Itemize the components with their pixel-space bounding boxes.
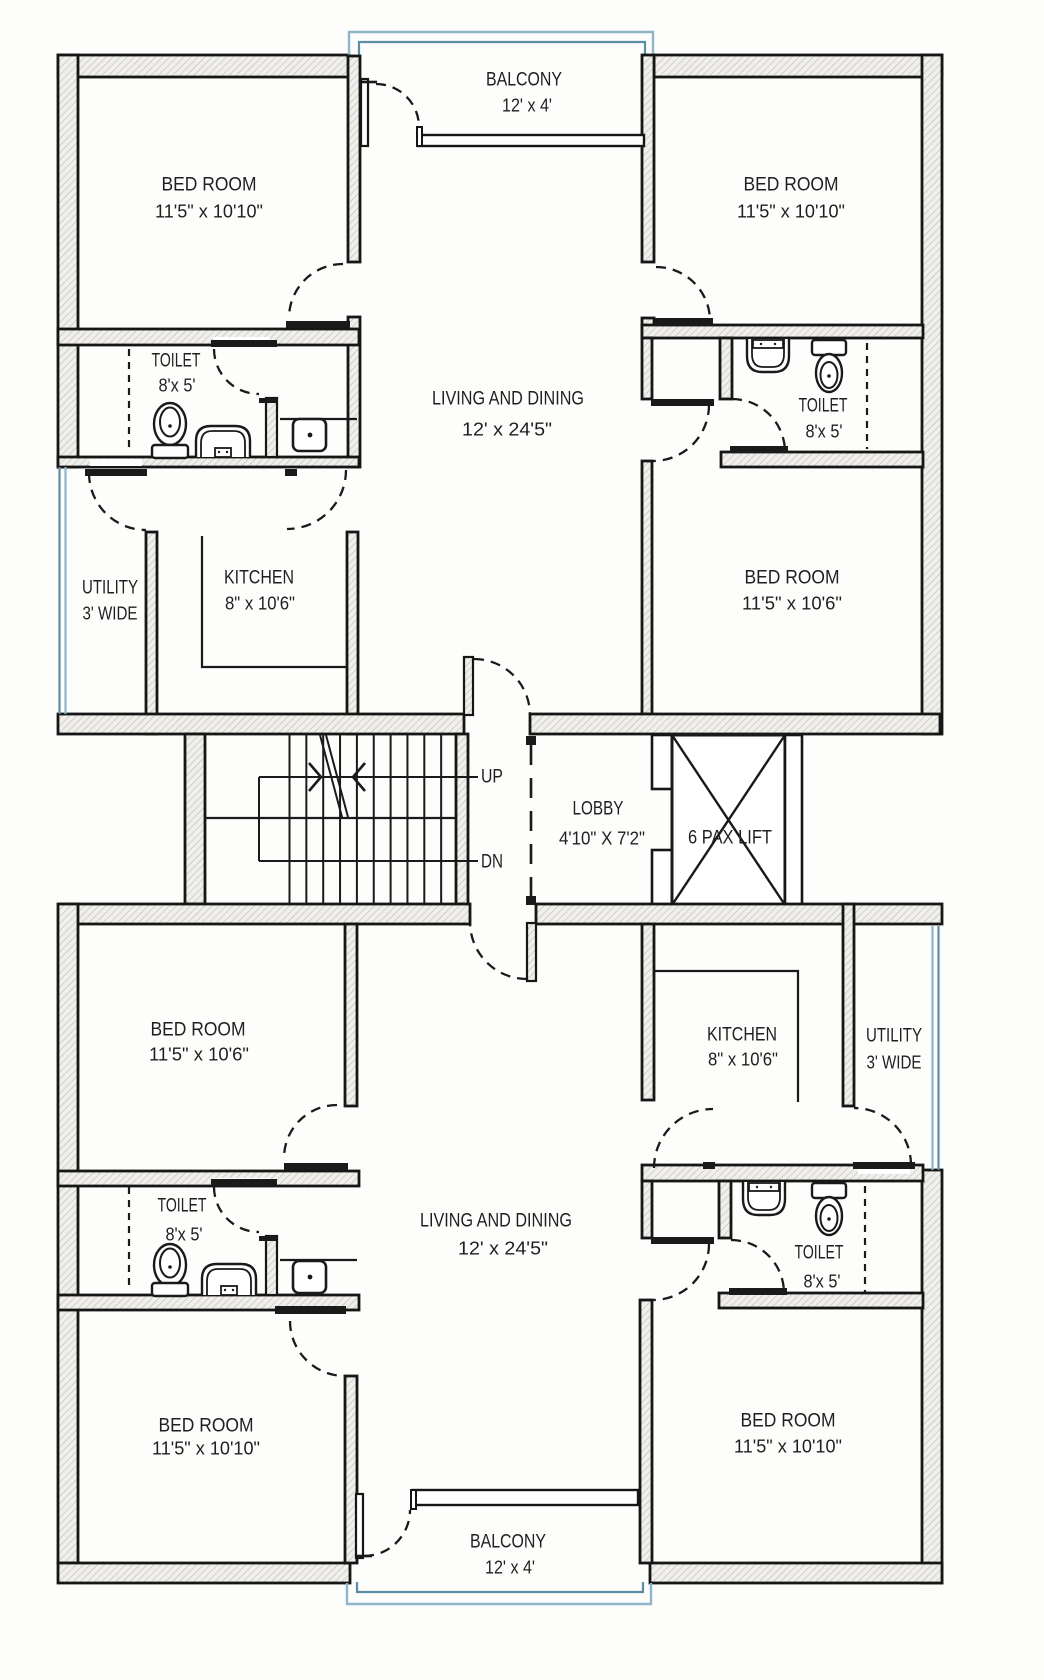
svg-text:TOILET: TOILET [152, 351, 201, 372]
svg-text:12' x 24'5": 12' x 24'5" [458, 1238, 548, 1259]
svg-text:11'5" x 10'10": 11'5" x 10'10" [152, 1438, 260, 1459]
svg-text:12' x 4': 12' x 4' [485, 1557, 535, 1578]
svg-text:TOILET: TOILET [158, 1196, 207, 1217]
svg-text:11'5" x 10'10": 11'5" x 10'10" [737, 201, 845, 222]
svg-text:UTILITY: UTILITY [866, 1026, 922, 1047]
svg-text:12' x 4': 12' x 4' [502, 95, 552, 116]
svg-text:TOILET: TOILET [795, 1243, 844, 1264]
svg-text:BED ROOM: BED ROOM [744, 175, 839, 196]
svg-text:12' x 24'5": 12' x 24'5" [462, 419, 552, 440]
svg-text:3' WIDE: 3' WIDE [867, 1052, 922, 1073]
svg-text:DN: DN [481, 852, 503, 873]
svg-text:11'5" x 10'6": 11'5" x 10'6" [149, 1044, 249, 1065]
svg-text:6 PAX LIFT: 6 PAX LIFT [688, 828, 772, 849]
svg-text:8'x 5': 8'x 5' [166, 1224, 203, 1245]
svg-text:11'5" x 10'10": 11'5" x 10'10" [155, 201, 263, 222]
svg-text:8'x 5': 8'x 5' [806, 421, 843, 442]
svg-text:11'5" x 10'10": 11'5" x 10'10" [734, 1436, 842, 1457]
svg-text:8'x 5': 8'x 5' [159, 375, 196, 396]
svg-text:LIVING AND DINING: LIVING AND DINING [432, 389, 584, 410]
svg-text:BED ROOM: BED ROOM [159, 1416, 254, 1437]
svg-text:BED ROOM: BED ROOM [162, 175, 257, 196]
svg-text:8" x 10'6": 8" x 10'6" [708, 1049, 778, 1070]
svg-text:UP: UP [481, 767, 503, 788]
svg-text:TOILET: TOILET [799, 396, 848, 417]
svg-text:LIVING AND DINING: LIVING AND DINING [420, 1211, 572, 1232]
svg-text:3' WIDE: 3' WIDE [83, 603, 138, 624]
svg-text:8'x 5': 8'x 5' [804, 1271, 841, 1292]
svg-text:BALCONY: BALCONY [486, 70, 562, 91]
svg-text:KITCHEN: KITCHEN [707, 1025, 777, 1046]
svg-text:BALCONY: BALCONY [470, 1532, 546, 1553]
svg-text:11'5" x 10'6": 11'5" x 10'6" [742, 593, 842, 614]
svg-text:BED ROOM: BED ROOM [151, 1020, 246, 1041]
svg-text:UTILITY: UTILITY [82, 578, 138, 599]
svg-text:4'10" X 7'2": 4'10" X 7'2" [559, 828, 645, 849]
svg-text:LOBBY: LOBBY [573, 799, 624, 820]
svg-text:8" x 10'6": 8" x 10'6" [225, 593, 295, 614]
svg-text:BED ROOM: BED ROOM [741, 1411, 836, 1432]
svg-text:BED ROOM: BED ROOM [745, 568, 840, 589]
svg-text:KITCHEN: KITCHEN [224, 568, 294, 589]
